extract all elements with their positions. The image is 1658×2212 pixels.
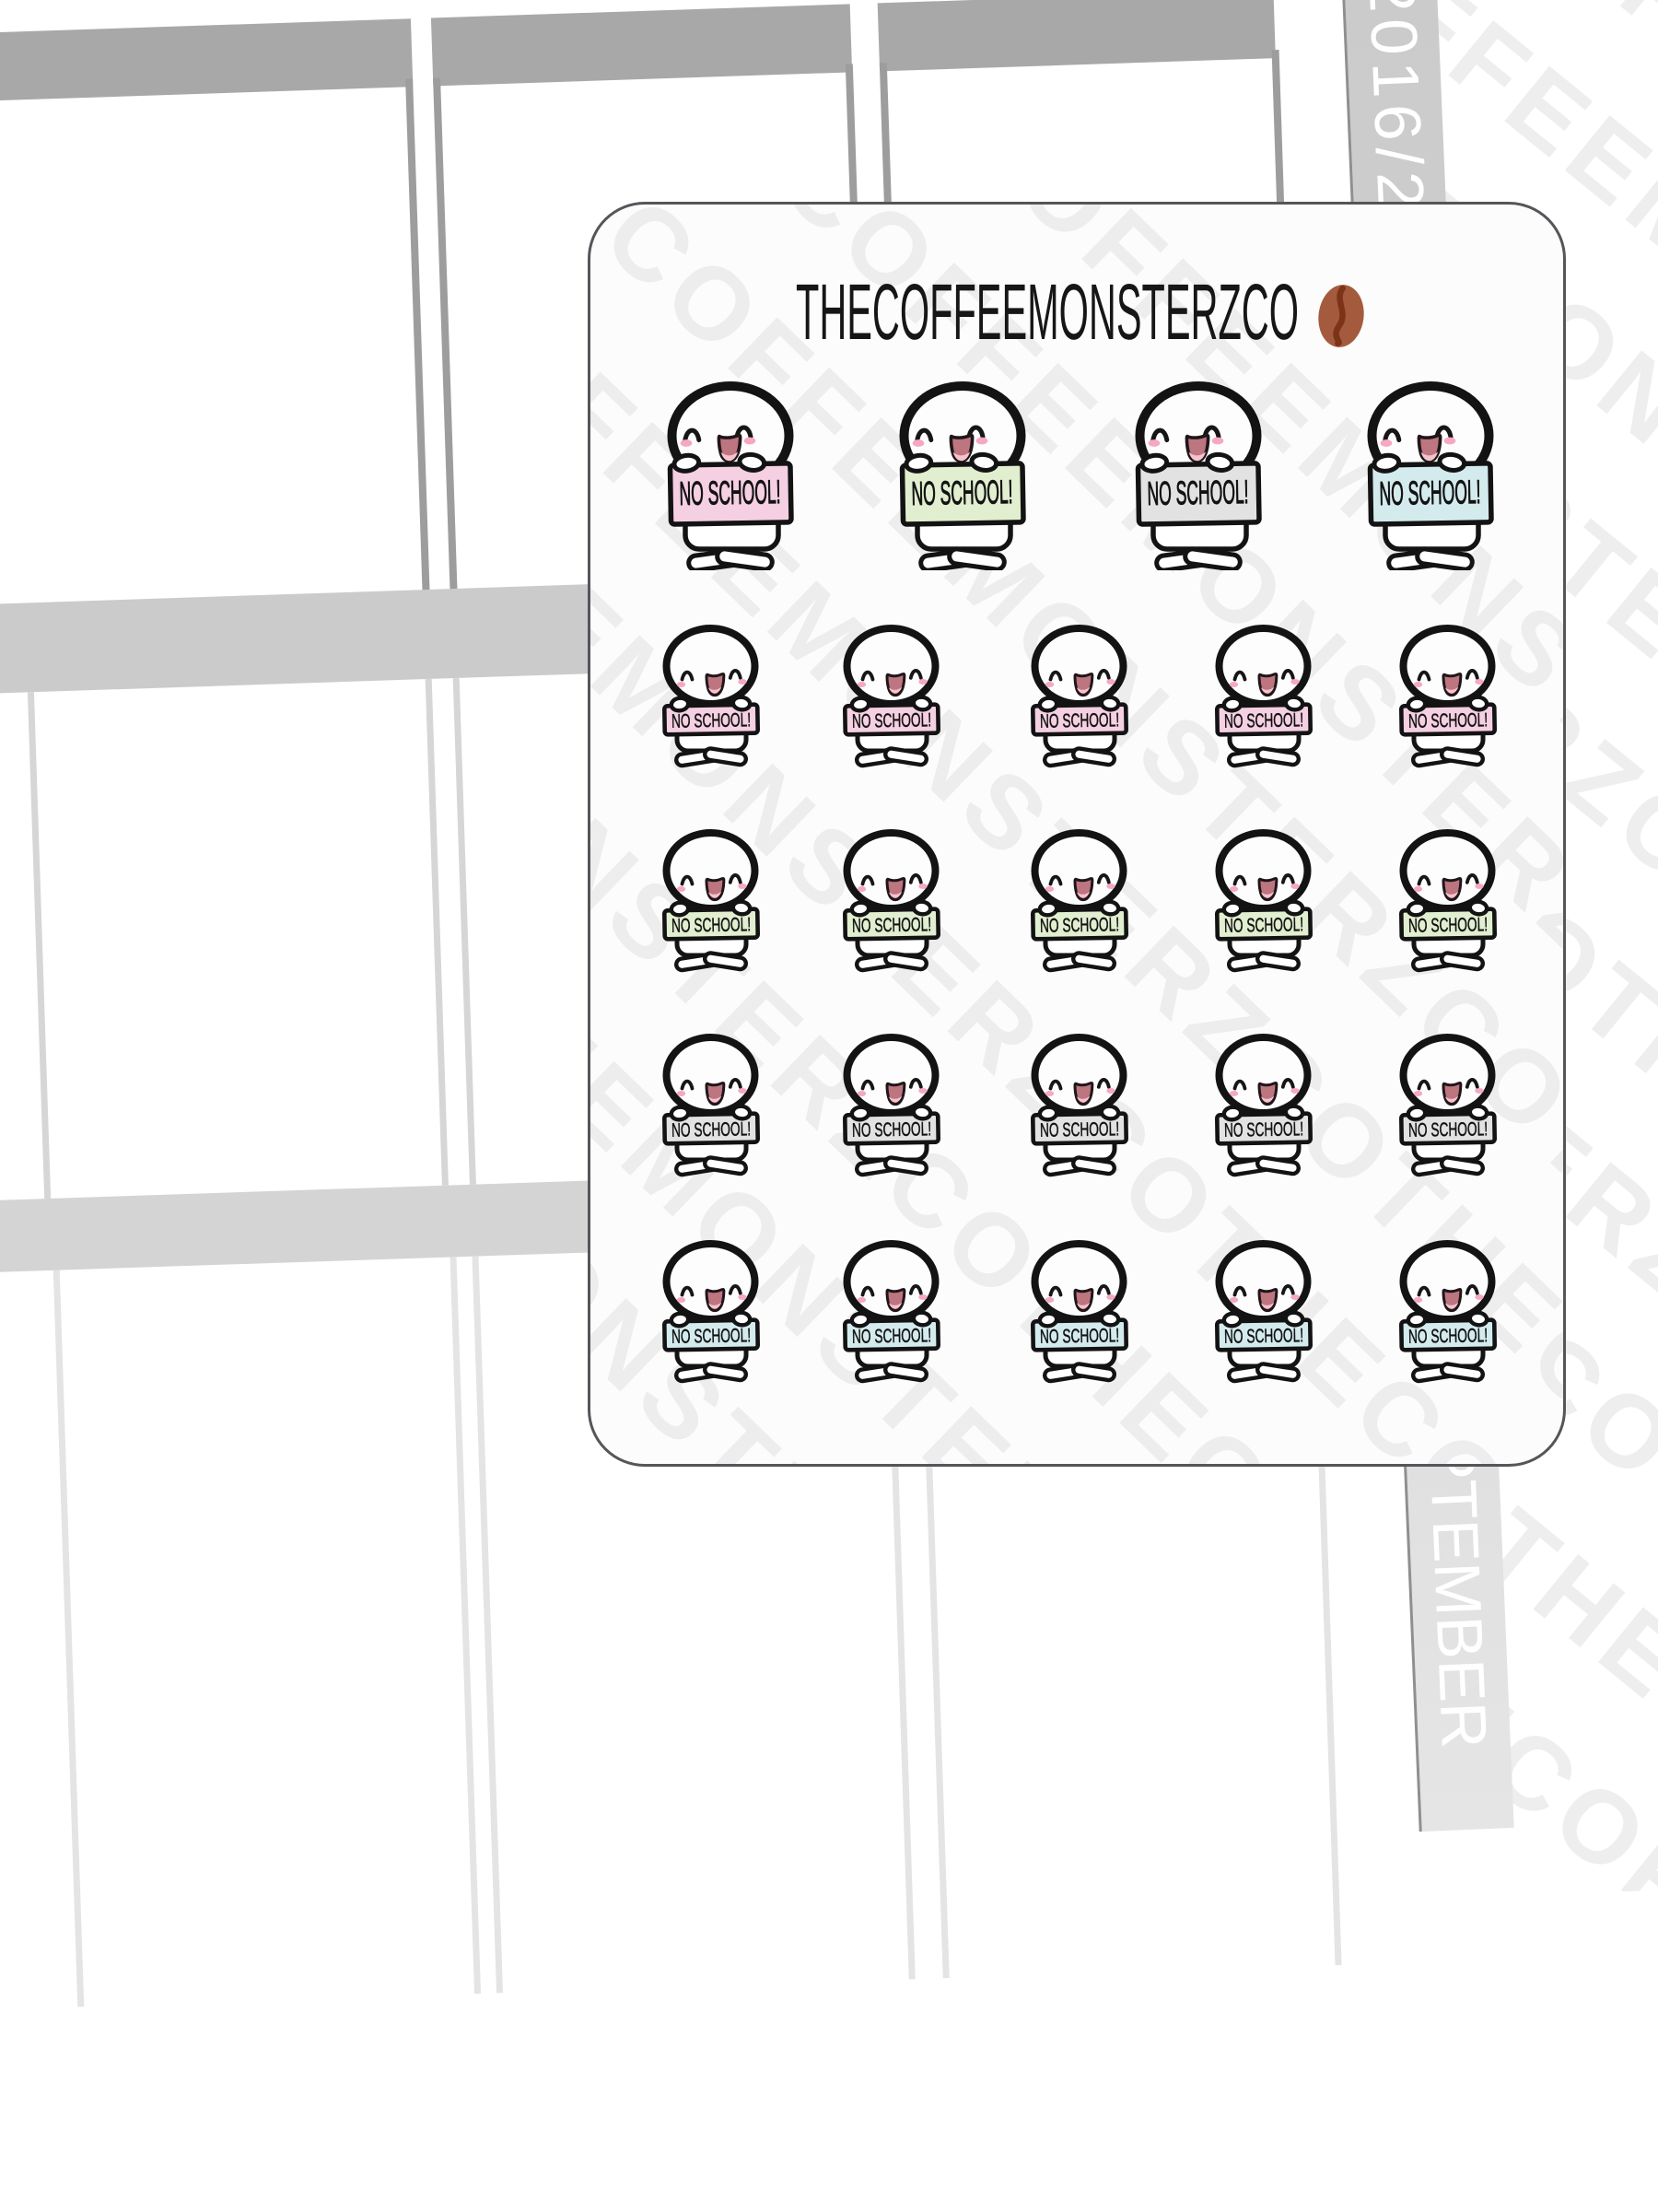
svg-text:THECOFFEEMONSTERZCO: THECOFFEEMONSTERZCO [796, 268, 1299, 357]
